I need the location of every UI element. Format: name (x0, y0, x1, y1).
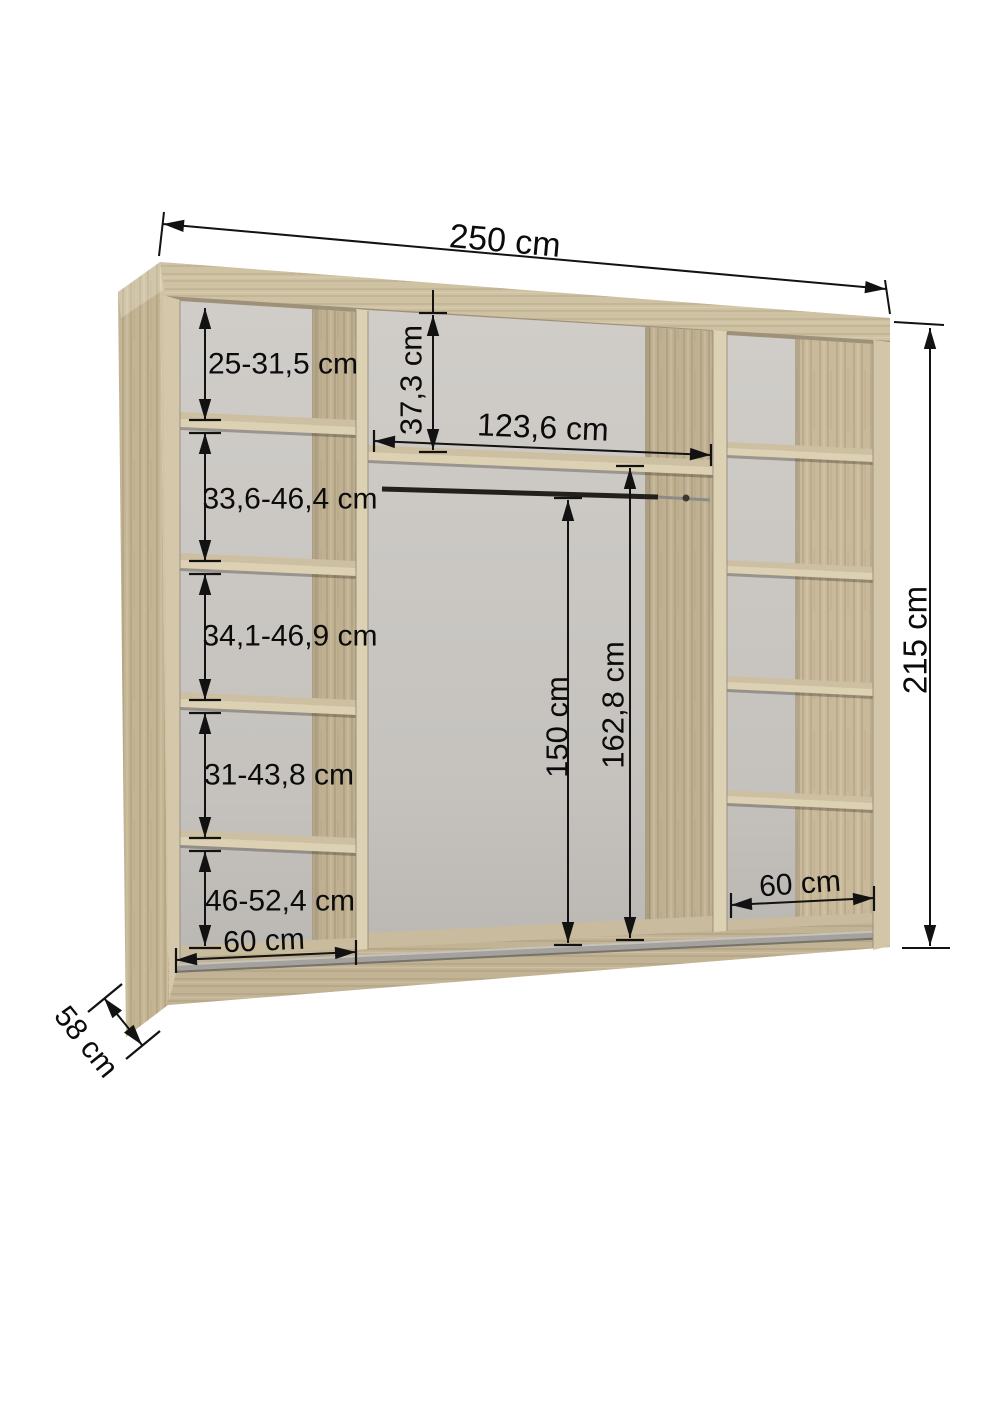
left-section-5-label: 46-52,4 cm (205, 885, 355, 918)
right-partition-front-edge (713, 330, 727, 932)
page: 250 cm 215 cm 58 cm (0, 0, 992, 1403)
left-section-2-label: 33,6-46,4 cm (202, 483, 377, 516)
right-column (727, 335, 873, 932)
rail-end-bracket (683, 495, 690, 502)
middle-width-label: 123,6 cm (476, 406, 609, 447)
left-side-panel (118, 262, 168, 1037)
right-width-label: 60 cm (758, 865, 842, 904)
total-height-label: 215 cm (897, 586, 934, 694)
left-section-4-label: 31-43,8 cm (204, 759, 354, 792)
left-width-label: 60 cm (222, 923, 305, 960)
right-frame-edge (873, 340, 890, 950)
rail-height-label: 150 cm (540, 676, 575, 778)
left-section-3-label: 34,1-46,9 cm (202, 620, 377, 653)
middle-height-label: 162,8 cm (596, 641, 631, 769)
left-section-1-label: 25-31,5 cm (208, 348, 358, 381)
top-section-label: 37,3 cm (394, 325, 429, 435)
wardrobe-diagram-svg: 250 cm 215 cm 58 cm (0, 0, 992, 1403)
